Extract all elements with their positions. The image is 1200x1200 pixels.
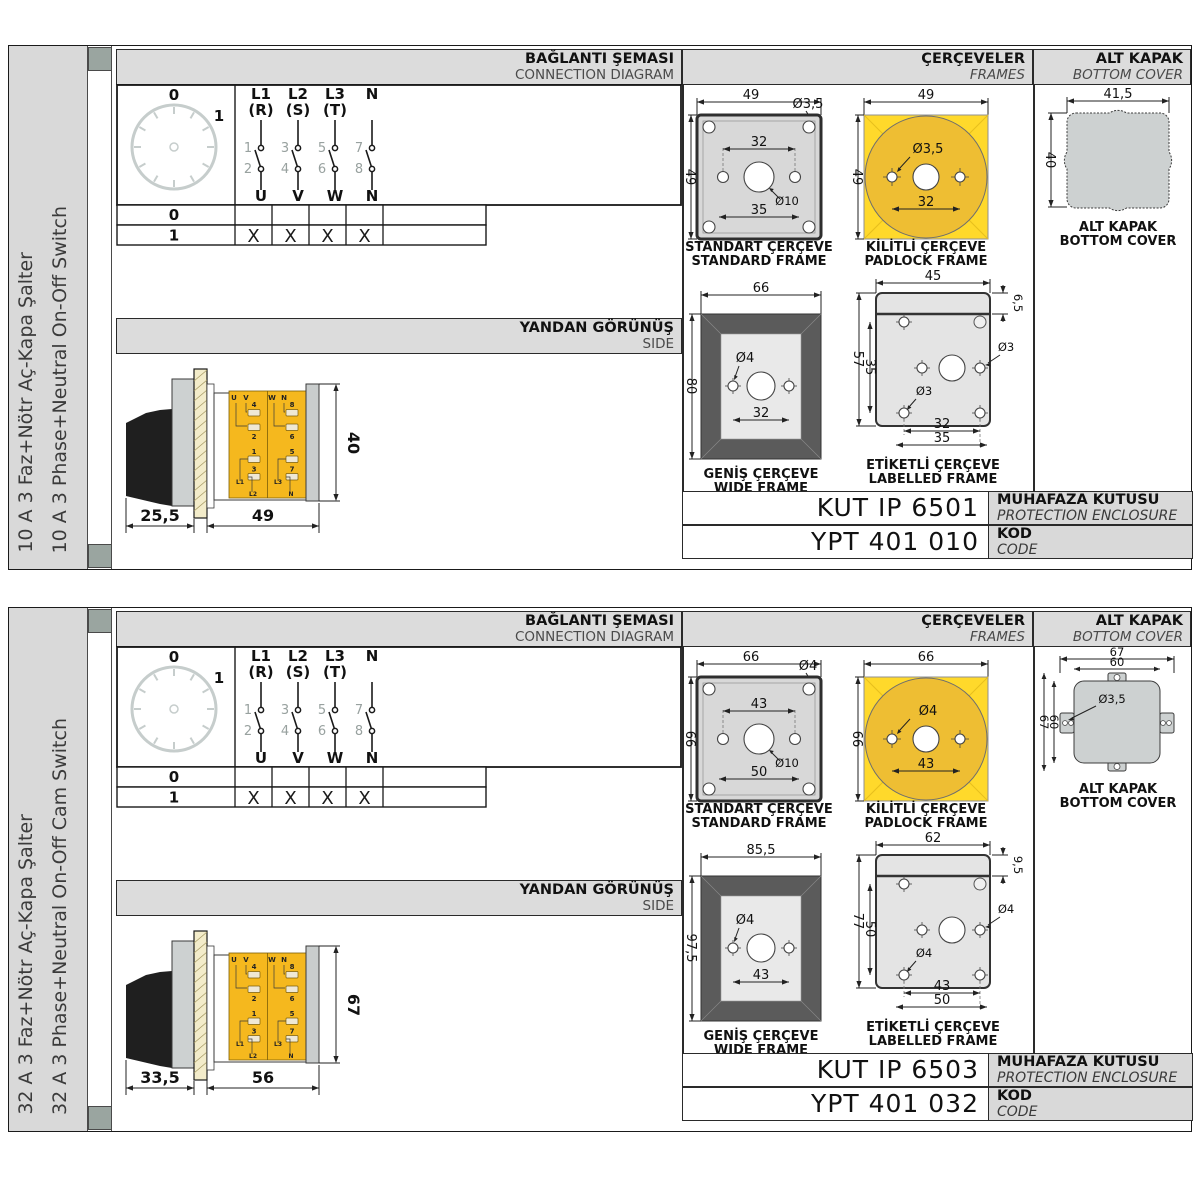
std-dim-height: 66 [682,731,697,748]
switch-handle [126,971,172,1068]
wide-hole-label: Ø4 [736,351,755,366]
switch-position-table: 0 1 X X X X [117,767,486,809]
header-side-en: SIDE [117,899,674,914]
svg-text:V: V [243,394,249,402]
pole-label-alt: (S) [286,101,311,119]
wide-dim-height: 97,5 [683,934,698,963]
side-dim-width: 56 [252,1068,274,1087]
table-row-label-0: 0 [169,768,179,786]
contact-number: 4 [281,162,289,177]
lab-dim-bottom-2: 50 [934,993,951,1008]
svg-text:V: V [243,956,249,964]
cover-hole-label: Ø3,5 [1098,692,1125,706]
contact-number: 7 [355,141,363,156]
section-header-bottom-cover: ALT KAPAK BOTTOM COVER [1033,49,1191,85]
cover-dim-width-inner: 60 [1110,655,1125,669]
pad-caption-en: PADLOCK FRAME [865,254,988,269]
labelled-frame-drawing: 45 6,5 57 35 Ø3 Ø3 32 [846,273,1021,485]
svg-text:U: U [231,956,237,964]
wide-dim-inner: 32 [753,406,770,421]
header-side-tr: YANDAN GÖRÜNÜŞ [117,883,674,899]
contact-number: 1 [244,141,252,156]
table-mark: X [358,226,370,247]
contact-number: 6 [318,162,326,177]
padlock-frame-drawing: 49 Ø3,5 32 49 KİLİTLİ ÇERÇEVE PADLOCK FR… [846,89,1006,269]
pole-label-alt: (R) [248,101,273,119]
divider-frames-cover [1033,646,1035,1053]
table-mark: X [284,226,296,247]
pad-hole-label: Ø4 [919,704,938,719]
contact-number: 1 [244,703,252,718]
bottom-cover-drawing-tabs: 67 60 67 60 Ø3,5 ALT KAPAK BOTTOM COVER [1036,651,1186,811]
table-mark: X [247,788,259,809]
side-dim-height: 67 [344,994,363,1016]
lab-dim-width: 45 [925,269,942,284]
pad-dim-height: 66 [849,731,864,748]
enclosure-label-tr: MUHAFAZA KUTUSU [997,493,1192,509]
lab-caption-tr: ETİKETLİ ÇERÇEVE [866,457,1000,473]
cover-dim-height-inner: 60 [1047,715,1061,730]
std-caption-en: STANDARD FRAME [691,816,826,831]
std-center-hole-label: Ø10 [775,194,799,208]
side-view-drawing: U V 4 2 1 3 L1 L2 W N 8 6 5 [116,363,386,548]
pole-label-alt: (T) [323,663,347,681]
contact-number: 4 [281,724,289,739]
padlock-frame-drawing: 66 Ø4 43 66 KİLİTLİ ÇERÇEVE PADLOCK FRAM… [846,651,1006,831]
lab-dim-strip: 6,5 [1011,294,1025,312]
std-caption-en: STANDARD FRAME [691,254,826,269]
output-label: V [292,749,304,767]
product-title-english: 32 A 3 Phase+Neutral On-Off Cam Switch [49,718,71,1115]
divider-frames-cover [1033,84,1035,491]
code-label-en: CODE [997,1105,1192,1120]
contact-number: 5 [318,141,326,156]
std-dim-height: 49 [682,169,697,186]
pole-label-alt: (S) [286,663,311,681]
output-label: W [327,187,344,205]
header-frames-en: FRAMES [683,630,1025,645]
wide-hole-label: Ø4 [736,913,755,928]
pad-dim-height: 49 [849,169,864,186]
product-code: YPT 401 010 [682,525,990,559]
cover-body [1064,110,1171,210]
wide-frame-drawing: 85,5 Ø4 43 97,5 GENİŞ ÇERÇEVE WIDE FRAME [681,844,841,1056]
table-row-label-1: 1 [169,789,179,807]
output-label: V [292,187,304,205]
enclosure-label-cell: MUHAFAZA KUTUSU PROTECTION ENCLOSURE [988,1053,1193,1087]
section-header-frames: ÇERÇEVELER FRAMES [682,611,1033,647]
lab-dim-strip: 9,5 [1011,856,1025,874]
sidebar-strip [88,608,112,1131]
cover-dim-width: 41,5 [1104,87,1133,102]
section-header-frames: ÇERÇEVELER FRAMES [682,49,1033,85]
header-frames-tr: ÇERÇEVELER [683,52,1025,68]
lab-caption-en: LABELLED FRAME [869,472,998,487]
header-frames-tr: ÇERÇEVELER [683,614,1025,630]
svg-text:N: N [288,491,293,498]
bottom-cover-drawing-plain: 41,5 40 ALT KAPAK BOTTOM COVER [1036,89,1186,249]
wide-dim-height: 80 [683,378,698,395]
dial-position-off: 0 [169,86,179,104]
svg-text:4: 4 [252,401,257,409]
pad-caption-tr: KİLİTLİ ÇERÇEVE [866,801,986,817]
svg-text:2: 2 [252,433,257,441]
lab-caption-en: LABELLED FRAME [869,1034,998,1049]
svg-text:N: N [281,394,287,402]
table-mark: X [321,226,333,247]
enclosure-label-tr: MUHAFAZA KUTUSU [997,1055,1192,1071]
pole-label: N [366,85,379,103]
lab-hole-label-1: Ø3 [998,340,1014,354]
std-caption-tr: STANDART ÇERÇEVE [685,802,833,817]
section-header-bottom-cover: ALT KAPAK BOTTOM COVER [1033,611,1191,647]
cover-caption-en: BOTTOM COVER [1060,796,1177,811]
svg-text:U: U [231,394,237,402]
code-label-cell: KOD CODE [988,525,1193,559]
pad-hole-label: Ø3,5 [913,142,944,157]
svg-text:8: 8 [290,963,295,971]
dial-position-on: 1 [214,107,224,125]
enclosure-code: KUT IP 6503 [682,1053,990,1087]
wide-caption-tr: GENİŞ ÇERÇEVE [704,466,819,482]
svg-text:L3: L3 [274,1041,282,1048]
lab-hole-label-1: Ø4 [998,902,1014,916]
code-label-tr: KOD [997,1089,1192,1105]
svg-text:W: W [268,956,276,964]
svg-text:L2: L2 [249,491,257,498]
dial-position-on: 1 [214,669,224,687]
contact-number: 8 [355,724,363,739]
product-title-english: 10 A 3 Phase+Neutral On-Off Switch [49,206,71,553]
code-label-en: CODE [997,543,1192,558]
pad-dim-width: 49 [918,88,935,103]
code-label-cell: KOD CODE [988,1087,1193,1121]
section-header-side-view: YANDAN GÖRÜNÜŞ SIDE [116,318,682,354]
lab-dim-inner-height: 50 [862,921,877,938]
side-dim-height: 40 [344,432,363,454]
header-connection-tr: BAĞLANTI ŞEMASI [117,52,674,68]
wide-dim-inner: 43 [753,968,770,983]
contact-number: 2 [244,162,252,177]
table-row-label-0: 0 [169,206,179,224]
svg-text:L1: L1 [236,479,244,486]
svg-text:7: 7 [290,1028,295,1036]
product-title-turkish: 32 A 3 Faz+Nötr Aç-Kapa Şalter [15,814,37,1115]
pad-dim-width: 66 [918,650,935,665]
contact-number: 3 [281,703,289,718]
lab-dim-width: 62 [925,831,942,846]
section-header-connection: BAĞLANTI ŞEMASI CONNECTION DIAGRAM [116,611,682,647]
header-connection-en: CONNECTION DIAGRAM [117,630,674,645]
svg-text:N: N [288,1053,293,1060]
connection-diagram: 0 1 L1 (R) 1 2 U L2 (S) 3 4 V [116,84,682,246]
binder-tab-top [88,609,112,633]
lab-hole-label-2: Ø3 [916,384,932,398]
lab-dim-bottom-1: 43 [934,979,951,994]
pad-dim-inner: 43 [918,757,935,772]
enclosure-label-en: PROTECTION ENCLOSURE [997,509,1192,524]
binder-tab-bottom [88,544,112,568]
pole-label-alt: (R) [248,663,273,681]
catalog-page: 10 A 3 Faz+Nötr Aç-Kapa Şalter 10 A 3 Ph… [0,0,1200,1200]
wide-dim-width: 85,5 [747,843,776,858]
wide-caption-tr: GENİŞ ÇERÇEVE [704,1028,819,1044]
header-cover-en: BOTTOM COVER [1034,630,1183,645]
product-sidebar: 10 A 3 Faz+Nötr Aç-Kapa Şalter 10 A 3 Ph… [9,46,88,569]
product-code: YPT 401 032 [682,1087,990,1121]
header-cover-tr: ALT KAPAK [1034,52,1183,68]
lab-dim-bottom-2: 35 [934,431,951,446]
product-sidebar: 32 A 3 Faz+Nötr Aç-Kapa Şalter 32 A 3 Ph… [9,608,88,1131]
header-connection-tr: BAĞLANTI ŞEMASI [117,614,674,630]
header-connection-en: CONNECTION DIAGRAM [117,68,674,83]
binder-tab-top [88,47,112,71]
standard-frame-drawing: 66 Ø4 43 Ø10 50 66 STANDART ÇERÇEVE STAN… [681,651,841,831]
svg-text:7: 7 [290,466,295,474]
svg-text:6: 6 [290,433,295,441]
output-label: U [255,749,267,767]
svg-text:2: 2 [252,995,257,1003]
labelled-frame-drawing: 62 9,5 77 50 Ø4 Ø4 43 [846,835,1021,1047]
side-dim-left: 33,5 [140,1068,179,1087]
side-dim-width: 49 [252,506,274,525]
switch-position-table: 0 1 X X X X [117,205,486,247]
std-dim-inner: 43 [751,697,768,712]
contact-number: 5 [318,703,326,718]
header-side-tr: YANDAN GÖRÜNÜŞ [117,321,674,337]
side-dim-left: 25,5 [140,506,179,525]
std-caption-tr: STANDART ÇERÇEVE [685,240,833,255]
output-label: U [255,187,267,205]
header-cover-tr: ALT KAPAK [1034,614,1183,630]
header-frames-en: FRAMES [683,68,1025,83]
svg-text:3: 3 [252,466,257,474]
std-dim-outer: 35 [751,203,768,218]
side-view-drawing: U V 4 2 1 3 L1 L2 W N 8 6 5 [116,925,386,1110]
product-block: 32 A 3 Faz+Nötr Aç-Kapa Şalter 32 A 3 Ph… [8,607,1192,1132]
svg-text:N: N [281,956,287,964]
svg-text:L3: L3 [274,479,282,486]
svg-text:5: 5 [290,448,295,456]
contact-number: 6 [318,724,326,739]
table-row-label-1: 1 [169,227,179,245]
pad-caption-tr: KİLİTLİ ÇERÇEVE [866,239,986,255]
lab-dim-inner-height: 35 [862,359,877,376]
output-label: N [366,749,379,767]
enclosure-label-cell: MUHAFAZA KUTUSU PROTECTION ENCLOSURE [988,491,1193,525]
pole-label: N [366,647,379,665]
svg-text:3: 3 [252,1028,257,1036]
contact-number: 8 [355,162,363,177]
lab-hole-label-2: Ø4 [916,946,932,960]
pad-dim-inner: 32 [918,195,935,210]
section-header-side-view: YANDAN GÖRÜNÜŞ SIDE [116,880,682,916]
svg-text:1: 1 [252,1010,257,1018]
product-block: 10 A 3 Faz+Nötr Aç-Kapa Şalter 10 A 3 Ph… [8,45,1192,570]
table-mark: X [247,226,259,247]
standard-frame-drawing: 49 Ø3,5 32 Ø10 35 49 STANDART ÇERÇEVE ST… [681,89,841,269]
std-center-hole-label: Ø10 [775,756,799,770]
svg-text:L1: L1 [236,1041,244,1048]
svg-text:1: 1 [252,448,257,456]
svg-text:5: 5 [290,1010,295,1018]
std-hole-label: Ø4 [799,659,818,674]
contact-number: 3 [281,141,289,156]
binder-tab-bottom [88,1106,112,1130]
pole-label-alt: (T) [323,101,347,119]
table-mark: X [321,788,333,809]
output-label: N [366,187,379,205]
table-mark: X [358,788,370,809]
product-title-turkish: 10 A 3 Faz+Nötr Aç-Kapa Şalter [15,252,37,553]
wide-dim-width: 66 [753,281,770,296]
svg-text:6: 6 [290,995,295,1003]
svg-text:W: W [268,394,276,402]
svg-text:L2: L2 [249,1053,257,1060]
cover-caption-tr: ALT KAPAK [1079,220,1158,235]
std-dim-outer: 50 [751,765,768,780]
svg-text:4: 4 [252,963,257,971]
enclosure-code: KUT IP 6501 [682,491,990,525]
sidebar-strip [88,46,112,569]
lab-dim-bottom-1: 32 [934,417,951,432]
cover-caption-en: BOTTOM COVER [1060,234,1177,249]
lab-caption-tr: ETİKETLİ ÇERÇEVE [866,1019,1000,1035]
connection-diagram: 0 1 L1 (R) 1 2 U L2 (S) 3 4 V [116,646,682,808]
cover-caption-tr: ALT KAPAK [1079,782,1158,797]
svg-text:8: 8 [290,401,295,409]
std-dim-inner: 32 [751,135,768,150]
output-label: W [327,749,344,767]
header-cover-en: BOTTOM COVER [1034,68,1183,83]
enclosure-label-en: PROTECTION ENCLOSURE [997,1071,1192,1086]
wide-frame-drawing: 66 Ø4 32 80 GENİŞ ÇERÇEVE WIDE FRAME [681,282,841,494]
pad-caption-en: PADLOCK FRAME [865,816,988,831]
table-mark: X [284,788,296,809]
cover-dim-height: 40 [1042,152,1057,169]
std-dim-width: 49 [743,88,760,103]
dial-position-off: 0 [169,648,179,666]
contact-number: 7 [355,703,363,718]
contact-number: 2 [244,724,252,739]
header-side-en: SIDE [117,337,674,352]
code-label-tr: KOD [997,527,1192,543]
std-dim-width: 66 [743,650,760,665]
std-hole-label: Ø3,5 [793,97,824,112]
section-header-connection: BAĞLANTI ŞEMASI CONNECTION DIAGRAM [116,49,682,85]
switch-handle [126,409,172,506]
